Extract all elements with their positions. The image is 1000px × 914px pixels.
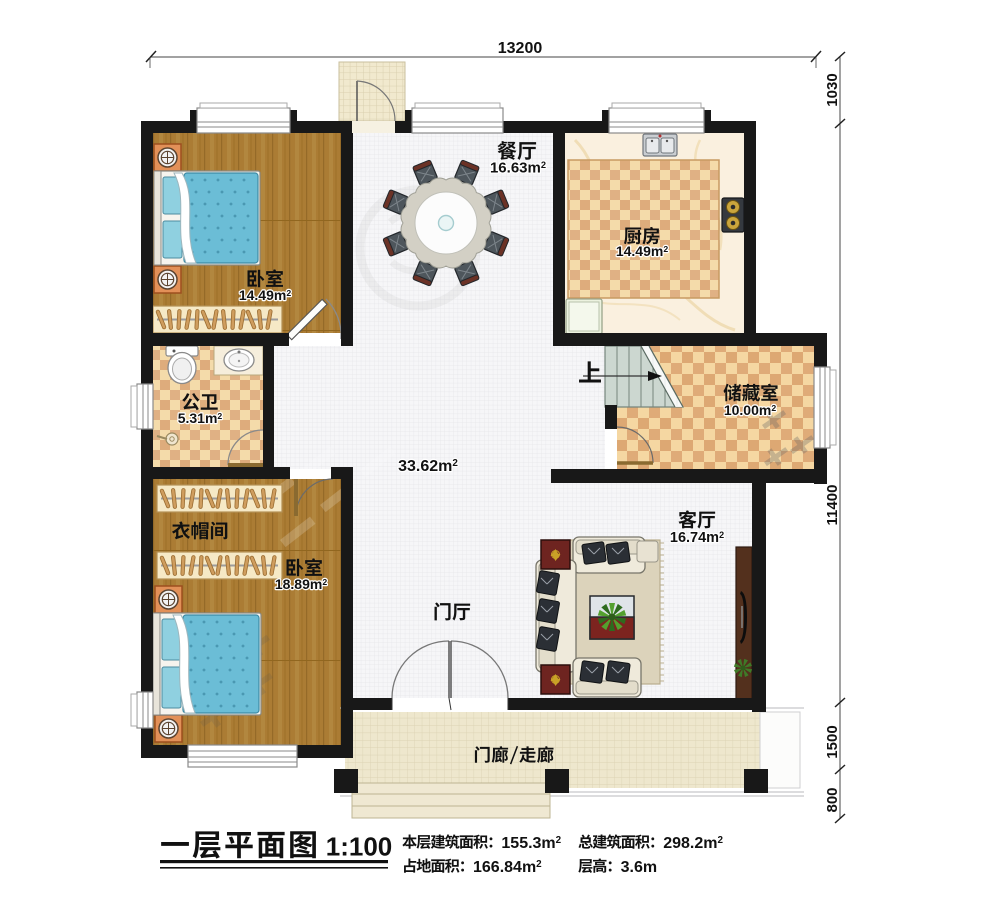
svg-text:1030: 1030 <box>824 73 841 106</box>
svg-text:14.49m2: 14.49m2 <box>239 287 291 303</box>
svg-text:166.84m2: 166.84m2 <box>473 859 542 876</box>
svg-text:800: 800 <box>824 787 841 812</box>
svg-text:5.31m2: 5.31m2 <box>178 410 223 426</box>
svg-text:18.89m2: 18.89m2 <box>275 576 327 592</box>
svg-text:13200: 13200 <box>498 40 543 57</box>
svg-text:16.63m2: 16.63m2 <box>490 159 546 176</box>
svg-text:11400: 11400 <box>824 485 841 526</box>
svg-text:155.3m2: 155.3m2 <box>501 835 561 852</box>
svg-text:3.6m: 3.6m <box>621 859 657 876</box>
svg-text:33.62m2: 33.62m2 <box>398 458 458 475</box>
svg-text:1:100: 1:100 <box>326 831 393 861</box>
svg-text:1500: 1500 <box>824 725 841 758</box>
svg-text:298.2m2: 298.2m2 <box>663 835 723 852</box>
svg-text:16.74m2: 16.74m2 <box>670 530 724 546</box>
svg-text:14.49m2: 14.49m2 <box>616 243 668 259</box>
svg-text:10.00m2: 10.00m2 <box>724 402 776 418</box>
